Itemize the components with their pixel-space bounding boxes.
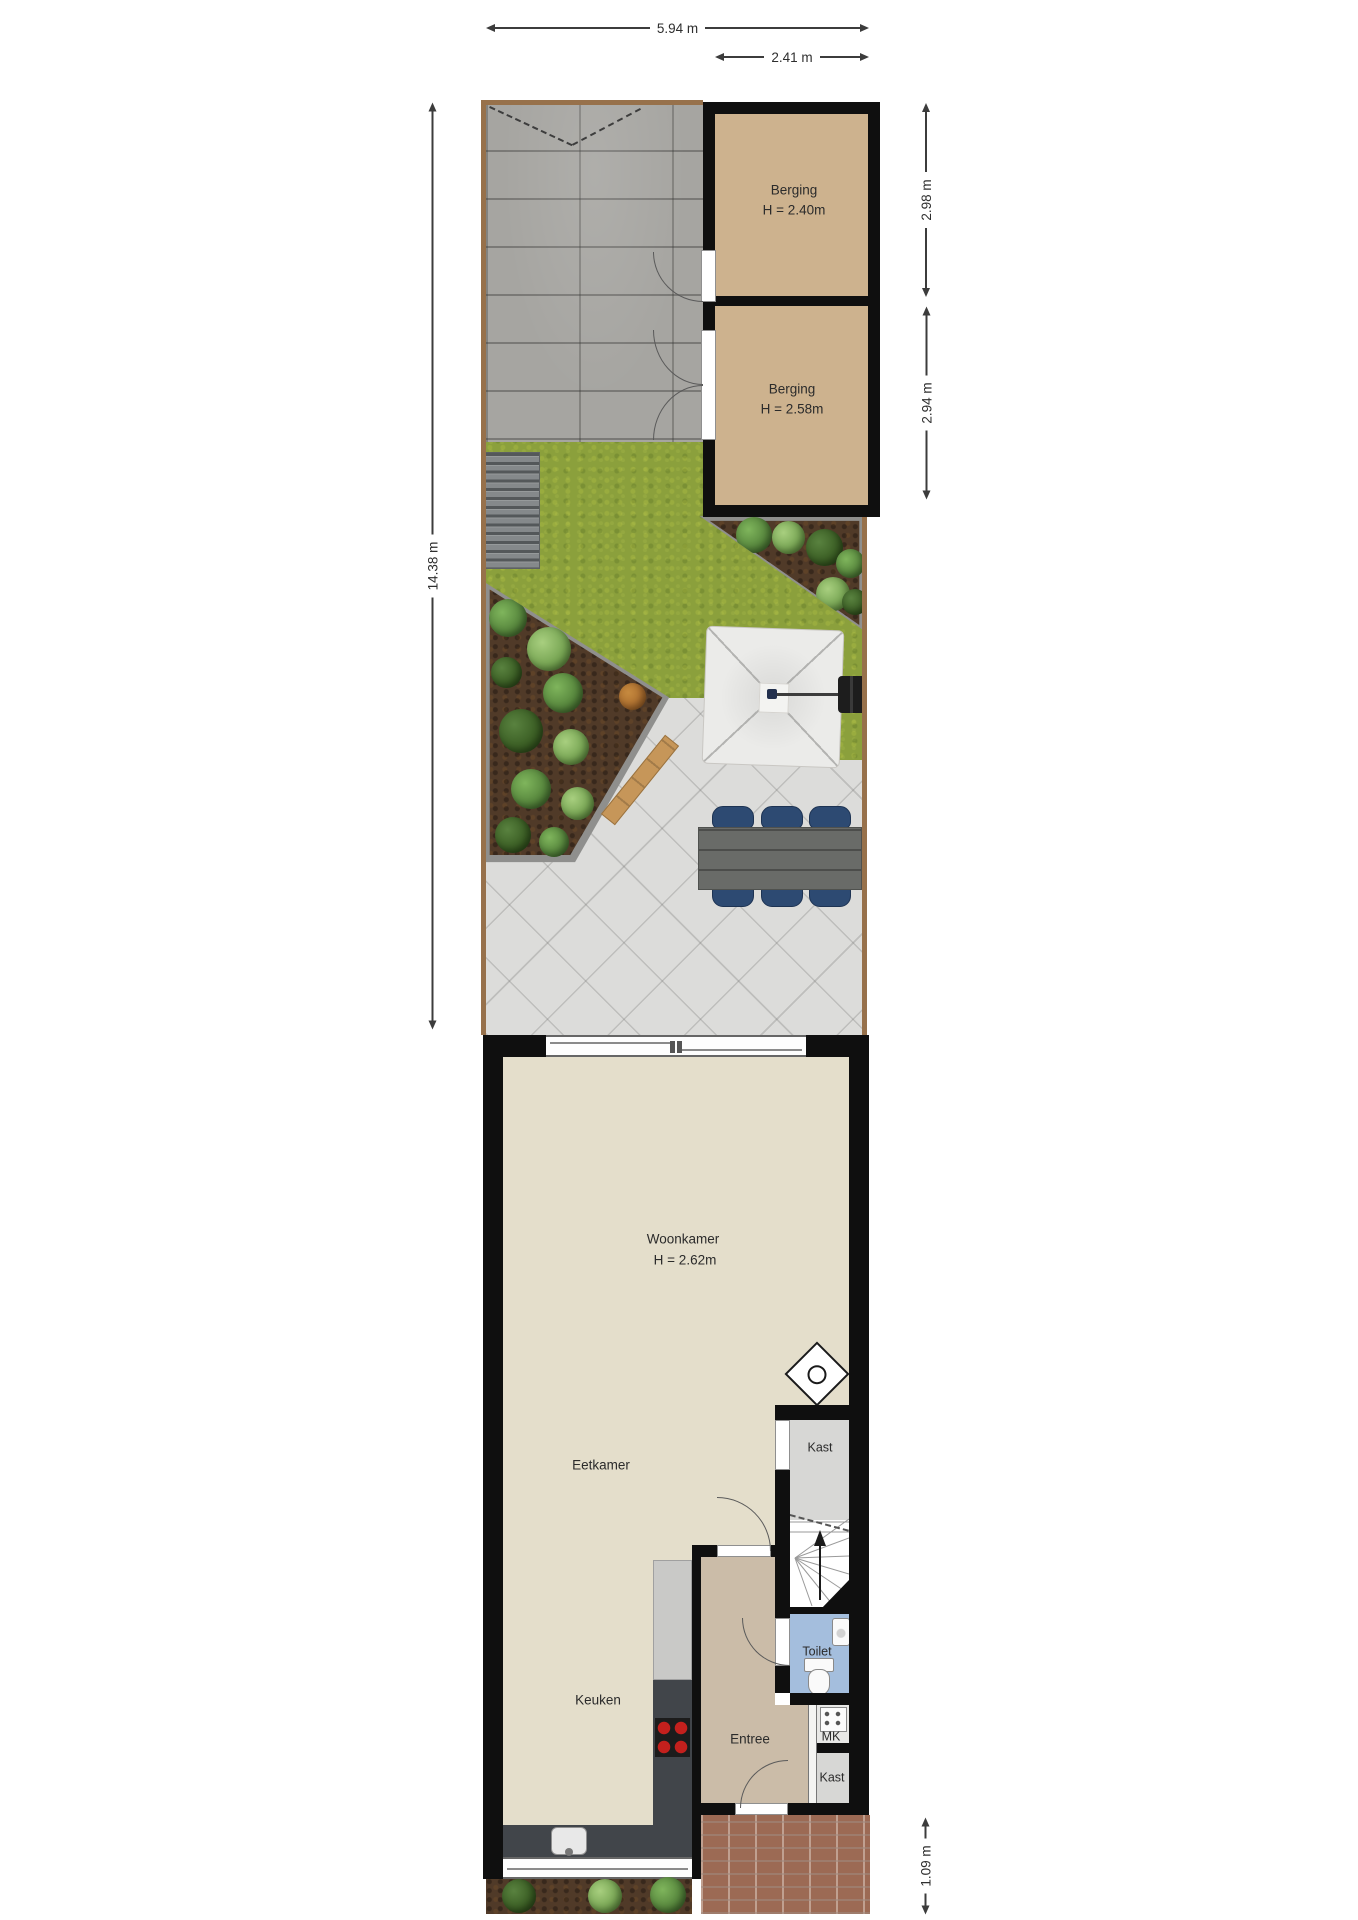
dim-berging2-depth: 2.94 m bbox=[920, 307, 934, 500]
kast-entree-label: Kast bbox=[819, 1769, 844, 1787]
wall-kast-top bbox=[775, 1405, 849, 1420]
wall-bottom-left-of-door bbox=[694, 1803, 735, 1815]
dim-berging-width: 2.41 m bbox=[715, 50, 869, 64]
garden-fence-left bbox=[481, 100, 486, 1035]
berging-block-floor bbox=[703, 102, 880, 517]
dim-berging1-depth-text: 2.98 m bbox=[919, 172, 934, 227]
berging-wall-mid bbox=[703, 296, 880, 306]
toilet-sink bbox=[832, 1618, 850, 1646]
berging2-height: H = 2.58m bbox=[761, 401, 824, 420]
front-brick-path bbox=[701, 1815, 870, 1914]
berging-wall-right bbox=[868, 102, 880, 517]
dim-berging1-depth: 2.98 m bbox=[919, 103, 933, 297]
umbrella-arm bbox=[772, 693, 844, 696]
wall-bottom-right-of-door bbox=[788, 1803, 869, 1815]
dim-berging2-depth-text: 2.94 m bbox=[919, 375, 934, 430]
berging-wall-bottom bbox=[703, 505, 880, 517]
kitchen-counter-upper bbox=[653, 1560, 692, 1680]
berging2-label: Berging bbox=[769, 381, 816, 400]
kitchen-counter-bottom bbox=[503, 1825, 692, 1857]
woonkamer-label: Woonkamer bbox=[647, 1231, 720, 1250]
wall-toilet-bottom bbox=[790, 1693, 869, 1705]
toilet-label: Toilet bbox=[802, 1643, 831, 1661]
kitchen-window bbox=[503, 1857, 692, 1879]
kast-hal-floor bbox=[790, 1420, 849, 1520]
garden-chair bbox=[712, 806, 754, 829]
meterkast-label: MK bbox=[822, 1728, 841, 1746]
cooktop bbox=[655, 1718, 690, 1757]
woonkamer-height: H = 2.62m bbox=[654, 1252, 717, 1271]
entree-label: Entree bbox=[730, 1731, 770, 1750]
wall-entree-top-b bbox=[771, 1545, 790, 1557]
dim-garden-length: 14.38 m bbox=[426, 103, 440, 1030]
house-wall-top-right bbox=[806, 1035, 869, 1057]
dim-garden-length-text: 14.38 m bbox=[425, 535, 440, 598]
berging2-door bbox=[701, 330, 716, 440]
wall-entree-top-a bbox=[692, 1545, 717, 1557]
keuken-label: Keuken bbox=[575, 1692, 621, 1711]
berging1-height: H = 2.40m bbox=[763, 202, 826, 221]
berging1-door bbox=[701, 250, 716, 302]
berging-wall-left-b bbox=[703, 302, 715, 330]
eetkamer-label: Eetkamer bbox=[572, 1457, 630, 1476]
kast-hal-door bbox=[775, 1420, 790, 1470]
kitchen-sink bbox=[551, 1827, 587, 1855]
closet-doors bbox=[808, 1705, 817, 1803]
house-wall-top-left bbox=[483, 1035, 546, 1057]
wall-toilet-left-a bbox=[775, 1666, 790, 1693]
berging-wall-left-c bbox=[703, 440, 715, 517]
berging-wall-top bbox=[703, 102, 880, 114]
garden-fence-right bbox=[862, 517, 867, 1035]
floorplan-page: Berging H = 2.40m Berging H = 2.58m Woon… bbox=[0, 0, 1358, 1920]
wall-keuken-entree bbox=[692, 1545, 701, 1879]
umbrella-pole bbox=[767, 689, 777, 699]
dim-berging-width-text: 2.41 m bbox=[764, 50, 819, 65]
garden-chair bbox=[809, 806, 851, 829]
berging-wall-left-a bbox=[703, 102, 715, 250]
garden-table bbox=[698, 827, 862, 890]
dim-front-path-depth-text: 1.09 m bbox=[918, 1838, 933, 1893]
garden-fence-top bbox=[481, 100, 703, 105]
front-garden-bed bbox=[486, 1879, 692, 1914]
berging1-label: Berging bbox=[771, 182, 818, 201]
dim-garden-width-text: 5.94 m bbox=[650, 21, 705, 36]
garden-steps bbox=[485, 452, 540, 569]
dim-front-path-depth: 1.09 m bbox=[919, 1818, 933, 1915]
wall-hall-vertical bbox=[775, 1470, 790, 1618]
toilet-fixture-bowl bbox=[808, 1669, 830, 1696]
house-wall-left bbox=[483, 1035, 503, 1879]
kast-hal-label: Kast bbox=[807, 1439, 832, 1457]
dim-garden-width: 5.94 m bbox=[486, 21, 869, 35]
sliding-door bbox=[546, 1035, 806, 1057]
garden-chair bbox=[761, 806, 803, 829]
